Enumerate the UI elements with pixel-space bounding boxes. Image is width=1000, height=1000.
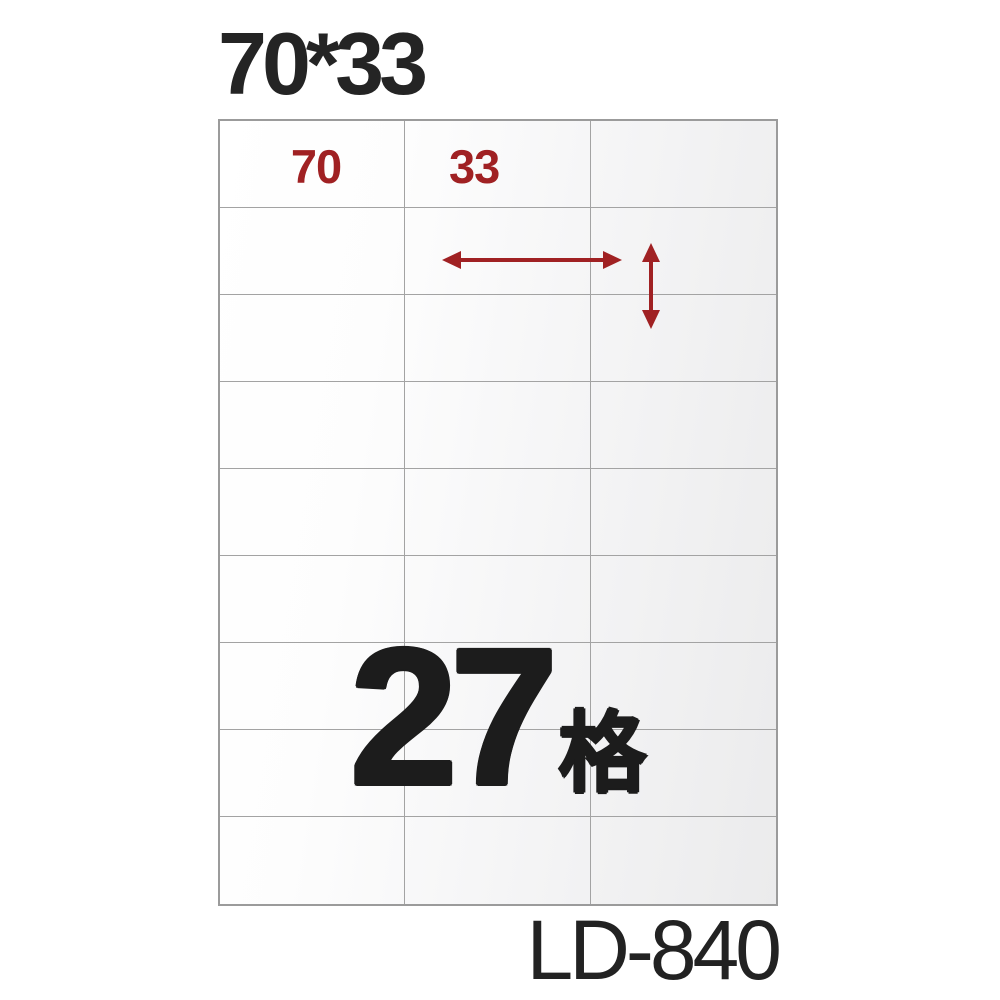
cell-count-number: 27 <box>350 620 551 815</box>
label-cell <box>220 208 405 295</box>
label-cell <box>591 295 776 382</box>
label-cell <box>591 382 776 469</box>
arrowhead-down <box>642 310 660 329</box>
label-cell <box>405 469 590 556</box>
height-dimension-arrow <box>640 242 662 330</box>
label-cell <box>220 382 405 469</box>
label-cell <box>591 469 776 556</box>
label-cell <box>591 817 776 904</box>
label-cell <box>220 817 405 904</box>
label-cell <box>405 817 590 904</box>
model-number: LD-840 <box>218 908 778 992</box>
label-cell <box>220 295 405 382</box>
width-dimension-arrow <box>441 249 623 271</box>
arrowhead-right <box>603 251 622 269</box>
arrowhead-left <box>442 251 461 269</box>
cell-count: 27 格 <box>218 620 778 815</box>
width-value-label: 70 <box>270 143 362 190</box>
label-cell <box>591 121 776 208</box>
cell-count-unit: 格 <box>558 710 646 798</box>
label-cell <box>405 295 590 382</box>
label-cell <box>220 469 405 556</box>
page-title: 70*33 <box>218 20 423 108</box>
height-value-label: 33 <box>449 143 499 190</box>
label-cell <box>405 382 590 469</box>
arrowhead-up <box>642 243 660 262</box>
